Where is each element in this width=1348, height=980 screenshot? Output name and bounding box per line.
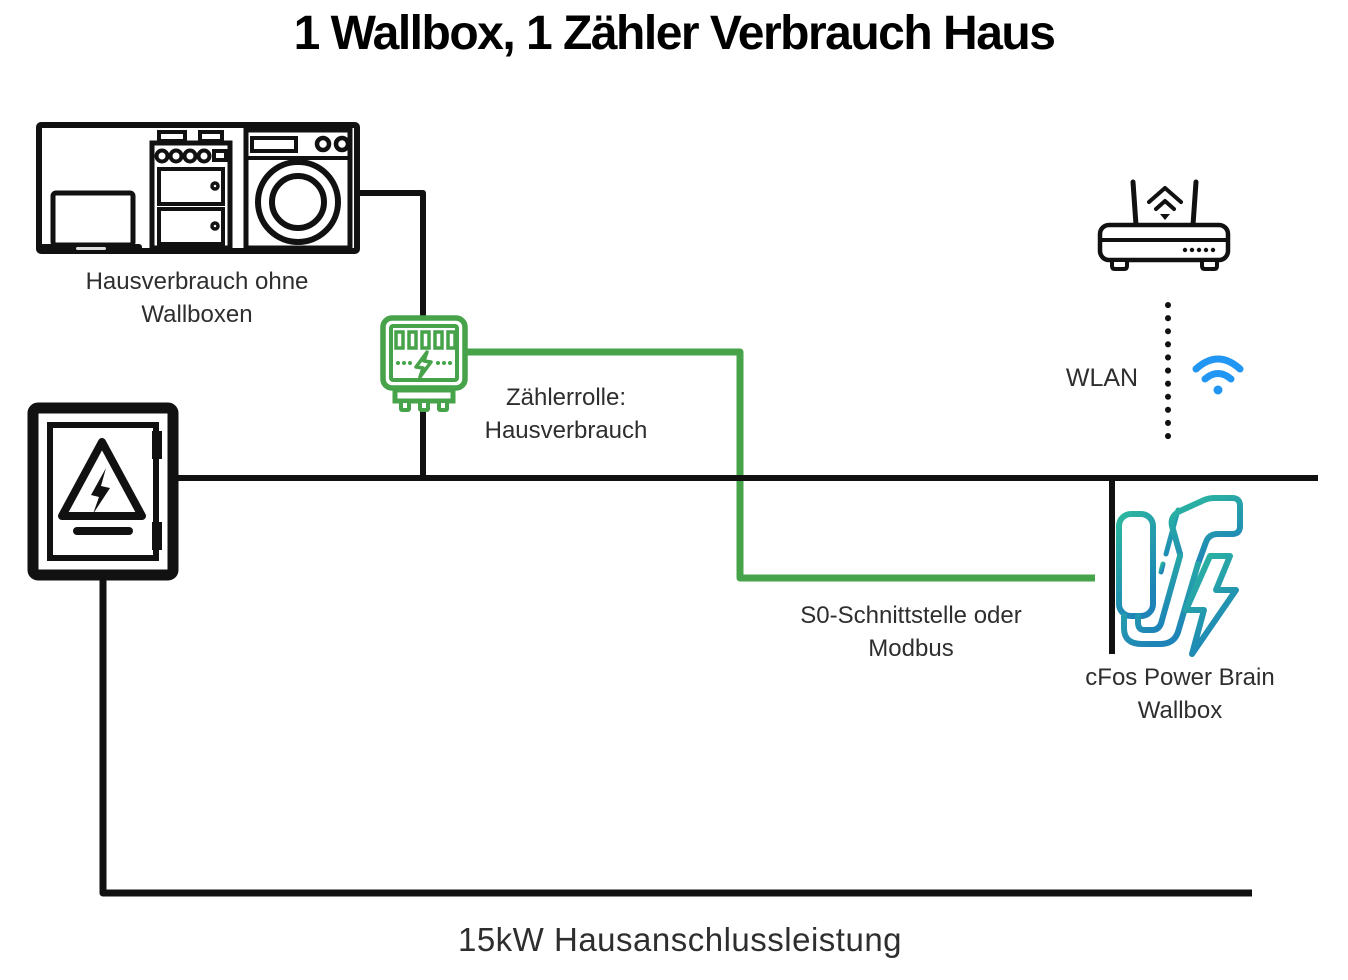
- wallbox-label: cFos Power Brain Wallbox: [1085, 661, 1274, 727]
- meter-label-line1: Zählerrolle:: [485, 381, 648, 414]
- diagram-canvas: 1 Wallbox, 1 Zähler Verbrauch Haus: [0, 0, 1348, 980]
- fuse-box-icon: [25, 400, 180, 585]
- house-label-line1: Hausverbrauch ohne: [86, 265, 309, 298]
- s0-label-line2: Modbus: [800, 632, 1021, 665]
- router-icon: [1095, 170, 1240, 275]
- supply-label: 15kW Hausanschlussleistung: [458, 921, 902, 959]
- wlan-label: WLAN: [1066, 362, 1138, 395]
- washing-machine-icon: [246, 130, 350, 248]
- supply-line: [103, 578, 1252, 893]
- meter-label: Zählerrolle: Hausverbrauch: [485, 381, 648, 447]
- wallbox-label-line1: cFos Power Brain: [1085, 661, 1274, 694]
- power-meter-icon: [378, 312, 470, 414]
- stove-icon: [152, 132, 230, 248]
- house-appliances-icon: [36, 122, 360, 254]
- laptop-icon: [40, 193, 142, 253]
- hinge-bottom: [152, 522, 162, 550]
- s0-label: S0-Schnittstelle oder Modbus: [800, 599, 1021, 665]
- wallbox-feed-line: [1100, 470, 1130, 670]
- hinge-top: [152, 431, 162, 459]
- meter-label-line2: Hausverbrauch: [485, 414, 648, 447]
- house-label-line2: Wallboxen: [86, 298, 309, 331]
- wifi-signal-icon: [1192, 352, 1244, 397]
- s0-label-line1: S0-Schnittstelle oder: [800, 599, 1021, 632]
- house-label: Hausverbrauch ohne Wallboxen: [86, 265, 309, 331]
- router-wifi-waves-icon: [1149, 188, 1181, 220]
- wallbox-label-line2: Wallbox: [1085, 694, 1274, 727]
